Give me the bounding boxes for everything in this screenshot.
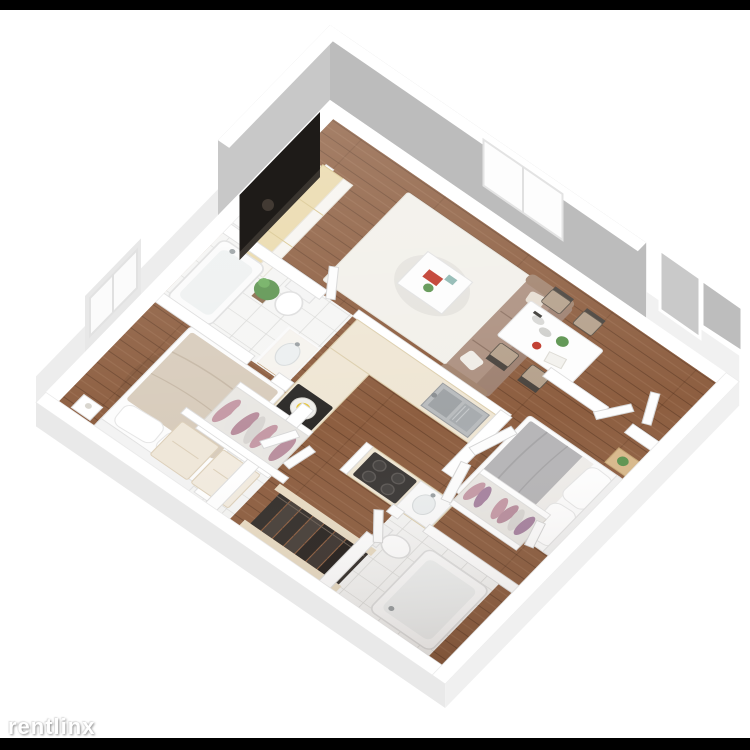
bottom-frame-bar [0,738,750,750]
isometric-scene [0,0,750,750]
floorplan-render: rentlinx [0,0,750,750]
watermark: rentlinx [8,714,95,740]
top-frame-bar [0,0,750,10]
bathroom2-door[interactable] [373,509,383,542]
floor-plane [36,100,739,684]
